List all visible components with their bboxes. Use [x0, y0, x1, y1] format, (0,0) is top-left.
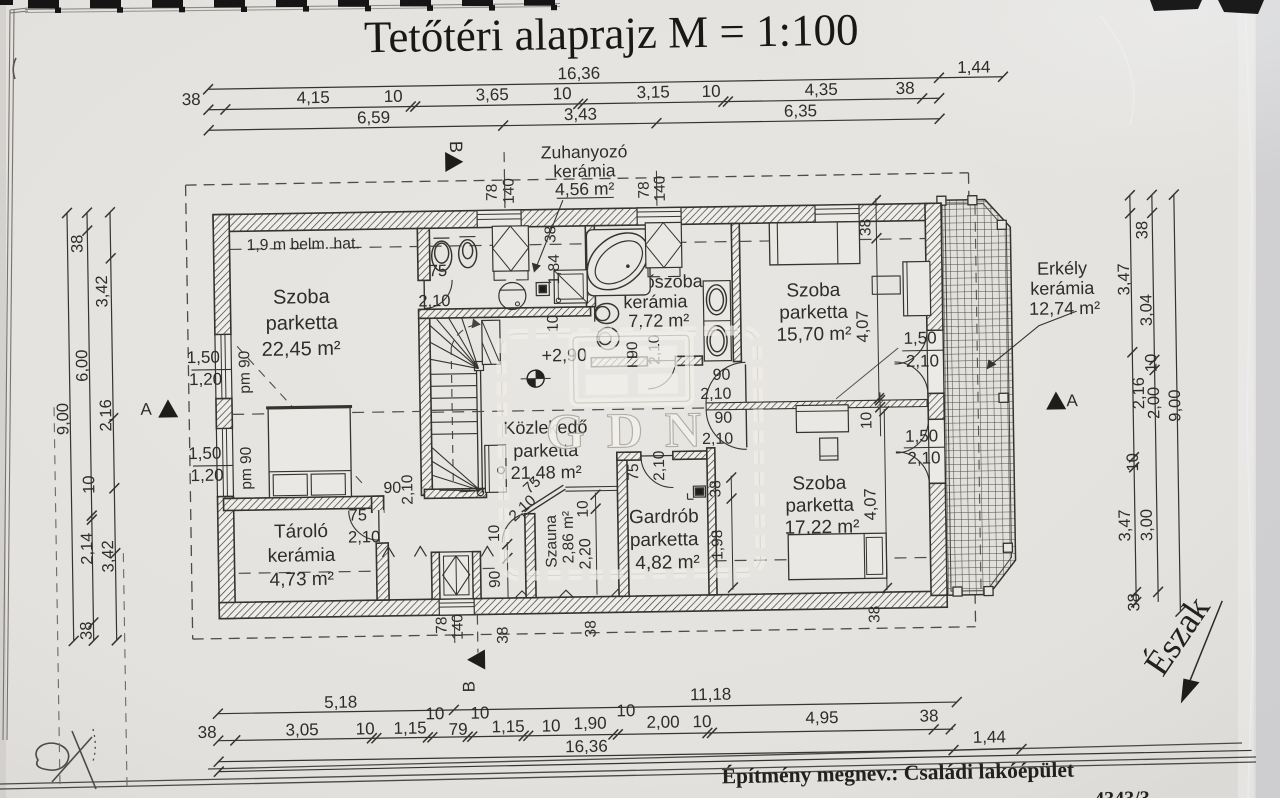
svg-text:1,84: 1,84: [546, 254, 563, 285]
svg-text:3,00: 3,00: [1138, 509, 1157, 541]
svg-text:75: 75: [625, 463, 642, 481]
svg-text:4343/3: 4343/3: [1094, 787, 1150, 798]
svg-text:90: 90: [487, 570, 504, 588]
svg-text:4,07: 4,07: [854, 310, 873, 342]
svg-text:4,15: 4,15: [297, 88, 330, 108]
svg-text:10: 10: [575, 500, 592, 518]
svg-text:38: 38: [495, 626, 512, 644]
svg-text:16,36: 16,36: [557, 64, 600, 84]
svg-text:10: 10: [616, 701, 635, 720]
svg-text:3,05: 3,05: [285, 720, 318, 740]
svg-text:10: 10: [80, 475, 98, 494]
svg-text:3,04: 3,04: [1137, 294, 1156, 326]
svg-text:75: 75: [348, 506, 367, 524]
svg-text:1,20: 1,20: [190, 466, 223, 486]
svg-text:140: 140: [651, 175, 668, 202]
svg-text:parketta: parketta: [779, 302, 848, 324]
svg-text:Szoba: Szoba: [792, 473, 847, 495]
svg-text:3,42: 3,42: [99, 540, 118, 572]
svg-text:9,00: 9,00: [54, 403, 73, 435]
svg-text:140: 140: [449, 613, 466, 640]
svg-text:21,48 m²: 21,48 m²: [510, 462, 581, 483]
svg-text:38: 38: [896, 79, 915, 98]
svg-text:38: 38: [707, 480, 724, 498]
svg-text:3,47: 3,47: [1115, 263, 1134, 295]
svg-text:1,20: 1,20: [189, 370, 222, 390]
svg-text:2,20: 2,20: [577, 538, 594, 570]
svg-text:3,15: 3,15: [636, 82, 669, 102]
svg-text:4,07: 4,07: [861, 488, 880, 520]
svg-text:3,42: 3,42: [93, 275, 112, 307]
svg-text:1,15: 1,15: [491, 717, 524, 737]
svg-text:A: A: [1066, 391, 1078, 410]
svg-text:38: 38: [68, 234, 86, 253]
svg-text:1,50: 1,50: [905, 426, 938, 446]
svg-text:9,00: 9,00: [1166, 389, 1185, 421]
svg-text:parketta: parketta: [265, 312, 338, 335]
svg-text:11,18: 11,18: [690, 685, 732, 705]
svg-text:78: 78: [433, 616, 450, 634]
svg-text:5,18: 5,18: [324, 692, 357, 712]
svg-text:Tetőtéri alaprajz M = 1:100: Tetőtéri alaprajz M = 1:100: [364, 5, 859, 63]
svg-text:+2,90: +2,90: [541, 345, 587, 366]
svg-text:10: 10: [1124, 453, 1142, 472]
svg-text:4,82 m²: 4,82 m²: [635, 552, 700, 574]
svg-text:38: 38: [582, 620, 599, 638]
svg-text:1,9 m belm. hat.: 1,9 m belm. hat.: [246, 235, 360, 254]
svg-text:Szoba: Szoba: [273, 286, 331, 309]
svg-text:2,10: 2,10: [399, 474, 416, 505]
svg-text:10: 10: [425, 704, 444, 723]
svg-text:10: 10: [384, 87, 403, 106]
svg-text:pm 90: pm 90: [236, 350, 254, 394]
svg-text:78: 78: [636, 181, 653, 199]
svg-text:1,44: 1,44: [973, 727, 1006, 747]
svg-text:3,47: 3,47: [1116, 509, 1135, 541]
svg-text:2,10: 2,10: [348, 528, 380, 547]
svg-text:2,10: 2,10: [418, 292, 450, 311]
svg-text:1,98: 1,98: [709, 530, 726, 560]
svg-text:A: A: [140, 400, 152, 419]
svg-text:2,14: 2,14: [78, 532, 97, 564]
svg-text:1,50: 1,50: [903, 328, 936, 348]
svg-text:kerámia: kerámia: [1030, 278, 1095, 299]
svg-text:B: B: [446, 141, 466, 153]
svg-text:2,86 m²: 2,86 m²: [560, 511, 578, 564]
svg-text:38: 38: [866, 606, 883, 624]
svg-text:parketta: parketta: [785, 495, 854, 517]
svg-text:2,00: 2,00: [646, 712, 679, 732]
svg-text:2,10: 2,10: [906, 351, 939, 371]
svg-text:7,72 m²: 7,72 m²: [628, 310, 689, 331]
svg-text:Gardrób: Gardrób: [629, 506, 699, 528]
svg-text:38: 38: [1133, 221, 1151, 240]
svg-text:pm 90: pm 90: [238, 446, 256, 490]
svg-text:38: 38: [1125, 593, 1143, 612]
svg-text:2,10: 2,10: [907, 448, 940, 468]
svg-text:38: 38: [182, 90, 201, 109]
svg-text:38: 38: [198, 723, 217, 742]
svg-text:1,44: 1,44: [957, 57, 990, 77]
svg-text:1,15: 1,15: [393, 718, 426, 738]
svg-text:Tároló: Tároló: [274, 521, 328, 543]
svg-text:4,95: 4,95: [805, 708, 838, 728]
svg-text:kerámia: kerámia: [267, 545, 335, 567]
svg-text:140: 140: [500, 178, 517, 205]
svg-text:10: 10: [1142, 354, 1160, 373]
svg-text:1,90: 1,90: [573, 714, 606, 734]
svg-text:10: 10: [356, 719, 375, 738]
svg-text:2,16: 2,16: [97, 399, 116, 431]
svg-text:GDN: GDN: [545, 401, 723, 460]
svg-text:3,43: 3,43: [564, 105, 597, 125]
svg-text:38: 38: [542, 226, 559, 244]
svg-text:79: 79: [449, 720, 468, 739]
svg-text:38: 38: [919, 706, 938, 725]
svg-text:10: 10: [692, 712, 711, 731]
svg-text:Szoba: Szoba: [786, 280, 841, 302]
svg-text:4,56 m²: 4,56 m²: [555, 178, 615, 199]
svg-text:parketta: parketta: [630, 529, 699, 551]
svg-text:6,59: 6,59: [357, 108, 390, 128]
svg-text:4,35: 4,35: [804, 80, 837, 100]
svg-text:1,50: 1,50: [187, 348, 220, 368]
svg-text:10: 10: [553, 84, 572, 103]
svg-text:3,65: 3,65: [475, 85, 508, 105]
svg-text:Zuhanyozó: Zuhanyozó: [541, 141, 628, 162]
svg-text:78: 78: [484, 184, 501, 202]
svg-text:90: 90: [713, 367, 731, 384]
svg-text:38: 38: [857, 219, 874, 237]
svg-text:22,45 m²: 22,45 m²: [262, 338, 342, 361]
svg-text:10: 10: [541, 716, 560, 735]
svg-text:10: 10: [470, 703, 489, 722]
svg-text:Erkély: Erkély: [1037, 258, 1087, 279]
svg-text:B: B: [459, 681, 478, 693]
svg-text:2,00: 2,00: [1145, 387, 1164, 419]
svg-text:38: 38: [77, 621, 95, 640]
svg-text:4,73 m²: 4,73 m²: [269, 569, 334, 591]
svg-text:6,35: 6,35: [784, 101, 817, 121]
svg-text:Szauna: Szauna: [543, 515, 561, 568]
svg-text:10: 10: [702, 82, 721, 101]
svg-text:10: 10: [858, 411, 875, 429]
svg-text:15,70 m²: 15,70 m²: [776, 324, 851, 346]
svg-text:6,00: 6,00: [73, 350, 92, 382]
svg-text:16,36: 16,36: [565, 737, 608, 757]
svg-text:1,50: 1,50: [188, 444, 221, 464]
